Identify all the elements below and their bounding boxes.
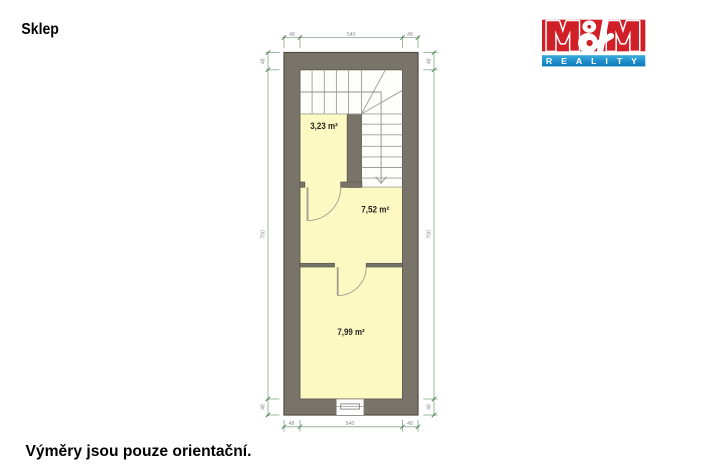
svg-text:48: 48 [427,58,433,64]
svg-text:48: 48 [289,421,295,427]
svg-text:540: 540 [346,421,355,427]
svg-text:48: 48 [260,404,266,410]
svg-text:540: 540 [347,32,356,38]
svg-text:Výměry jsou pouze orientační.: Výměry jsou pouze orientační. [26,443,252,460]
svg-text:48: 48 [260,58,266,64]
svg-text:7,52 m²: 7,52 m² [361,204,389,214]
svg-text:700: 700 [260,230,266,239]
svg-text:7,99 m²: 7,99 m² [337,327,364,337]
svg-text:3,23 m²: 3,23 m² [310,121,338,131]
svg-text:48: 48 [407,421,413,427]
svg-text:48: 48 [289,32,295,38]
svg-text:48: 48 [427,404,433,410]
svg-text:700: 700 [427,230,433,239]
svg-text:48: 48 [407,32,413,38]
svg-text:Sklep: Sklep [21,21,59,38]
